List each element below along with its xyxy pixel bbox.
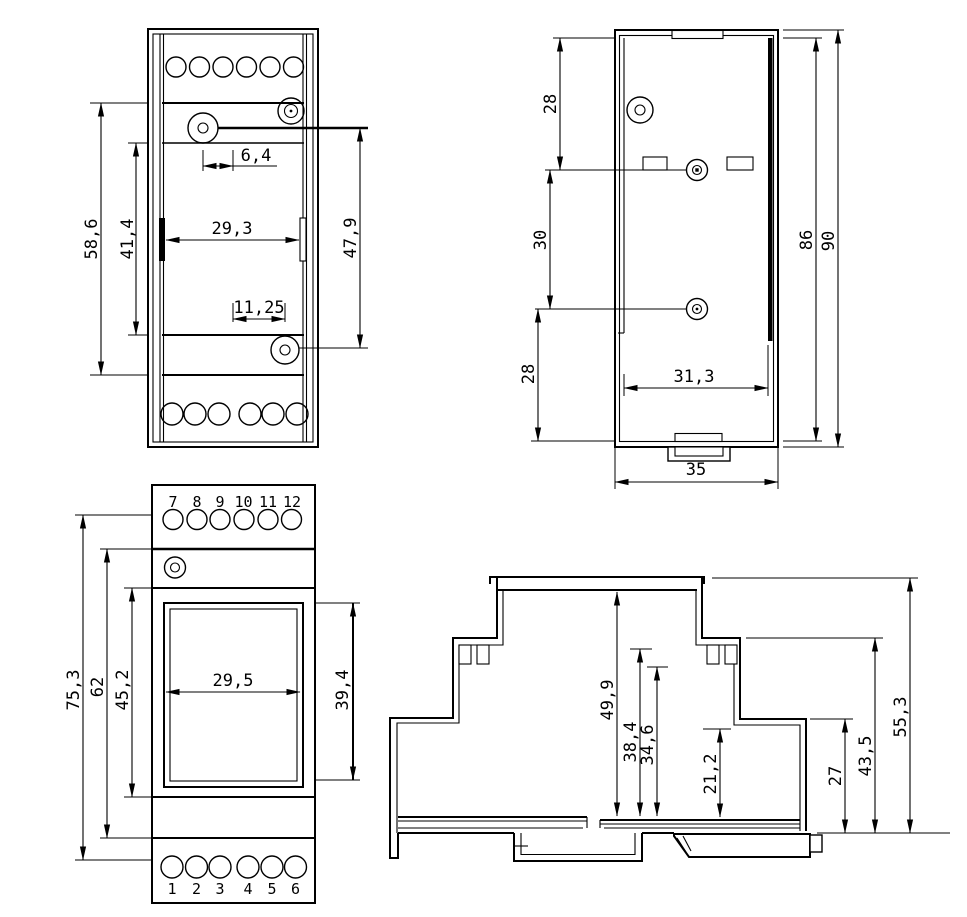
dim-label-43-5: 43,5 — [856, 736, 876, 777]
view-rear: 28 30 28 86 90 31,3 35 — [519, 30, 844, 489]
rear-knob — [627, 97, 653, 123]
terminal-label: 2 — [192, 880, 201, 898]
terminal-label: 8 — [192, 493, 201, 511]
screw-lower — [687, 299, 708, 320]
top-tab — [672, 31, 723, 39]
terminal-labels-top: 7 8 9 10 11 12 — [168, 493, 301, 511]
screw-boss — [278, 98, 304, 124]
din-rail-channel — [514, 833, 642, 861]
dim-label-27: 27 — [826, 766, 846, 786]
base-platform — [398, 817, 800, 833]
dim-label-6-4: 6,4 — [241, 146, 272, 166]
adjustment-knob — [188, 113, 218, 143]
terminal-label: 4 — [243, 880, 252, 898]
view-side: 49,9 38,4 34,6 21,2 27 43,5 55,3 — [390, 577, 950, 861]
terminal-label: 3 — [215, 880, 224, 898]
terminal-label: 11 — [259, 493, 277, 511]
enclosure-dimension-drawing: 6,4 29,3 11,25 58,6 — [0, 0, 967, 917]
dim-label-30: 30 — [531, 230, 551, 250]
left-tab — [159, 218, 165, 261]
dim-label-90: 90 — [819, 231, 839, 251]
dim-label-29-3: 29,3 — [212, 219, 253, 239]
dim-label-28-bottom: 28 — [519, 364, 539, 384]
dim-label-31-3: 31,3 — [674, 367, 715, 387]
slot-right — [727, 157, 753, 170]
dim-label-39-4: 39,4 — [333, 670, 353, 711]
dim-label-11-25: 11,25 — [233, 298, 284, 318]
terminal-label: 10 — [234, 493, 252, 511]
terminal-label: 12 — [283, 493, 301, 511]
terminal-labels-bottom: 1 2 3 4 5 6 — [167, 880, 300, 898]
dim-label-41-4: 41,4 — [118, 219, 138, 260]
dim-label-58-6: 58,6 — [82, 219, 102, 260]
terminal-holes-bottom — [161, 403, 308, 425]
dim-label-47-9: 47,9 — [341, 218, 361, 259]
terminal-label: 5 — [267, 880, 276, 898]
dim-label-62: 62 — [88, 677, 108, 697]
top-cap — [490, 577, 704, 584]
front-knob — [165, 557, 186, 578]
terminal-label: 9 — [215, 493, 224, 511]
display-window — [164, 603, 303, 787]
adjustment-knob-lower — [271, 336, 299, 364]
right-tab — [300, 218, 306, 261]
terminal-holes-bottom — [161, 856, 307, 878]
dim-label-49-9: 49,9 — [598, 680, 618, 721]
bottom-tab — [675, 434, 722, 442]
drawing-canvas: 6,4 29,3 11,25 58,6 — [0, 0, 967, 917]
screw-upper — [687, 160, 708, 181]
terminal-label: 7 — [168, 493, 177, 511]
dim-label-86: 86 — [797, 230, 817, 250]
dim-label-34-6: 34,6 — [638, 725, 658, 766]
view-front-bottom: 7 8 9 10 11 12 29,5 — [64, 485, 360, 903]
terminal-holes-top — [163, 510, 302, 530]
terminal-label: 1 — [167, 880, 176, 898]
rail-rib — [768, 38, 773, 341]
dim-label-35: 35 — [686, 460, 706, 480]
terminal-label: 6 — [291, 880, 300, 898]
terminal-holes-top — [166, 57, 304, 77]
dim-label-29-5: 29,5 — [213, 671, 254, 691]
view-front-top: 6,4 29,3 11,25 58,6 — [82, 29, 368, 447]
dim-label-55-3: 55,3 — [891, 697, 911, 738]
dim-label-75-3: 75,3 — [64, 670, 84, 711]
dim-label-28-top: 28 — [541, 94, 561, 114]
vent-slots — [459, 645, 737, 664]
dim-label-45-2: 45,2 — [113, 670, 133, 711]
slot-left — [643, 157, 667, 170]
dim-label-21-2: 21,2 — [701, 754, 721, 795]
din-clip — [674, 834, 822, 857]
